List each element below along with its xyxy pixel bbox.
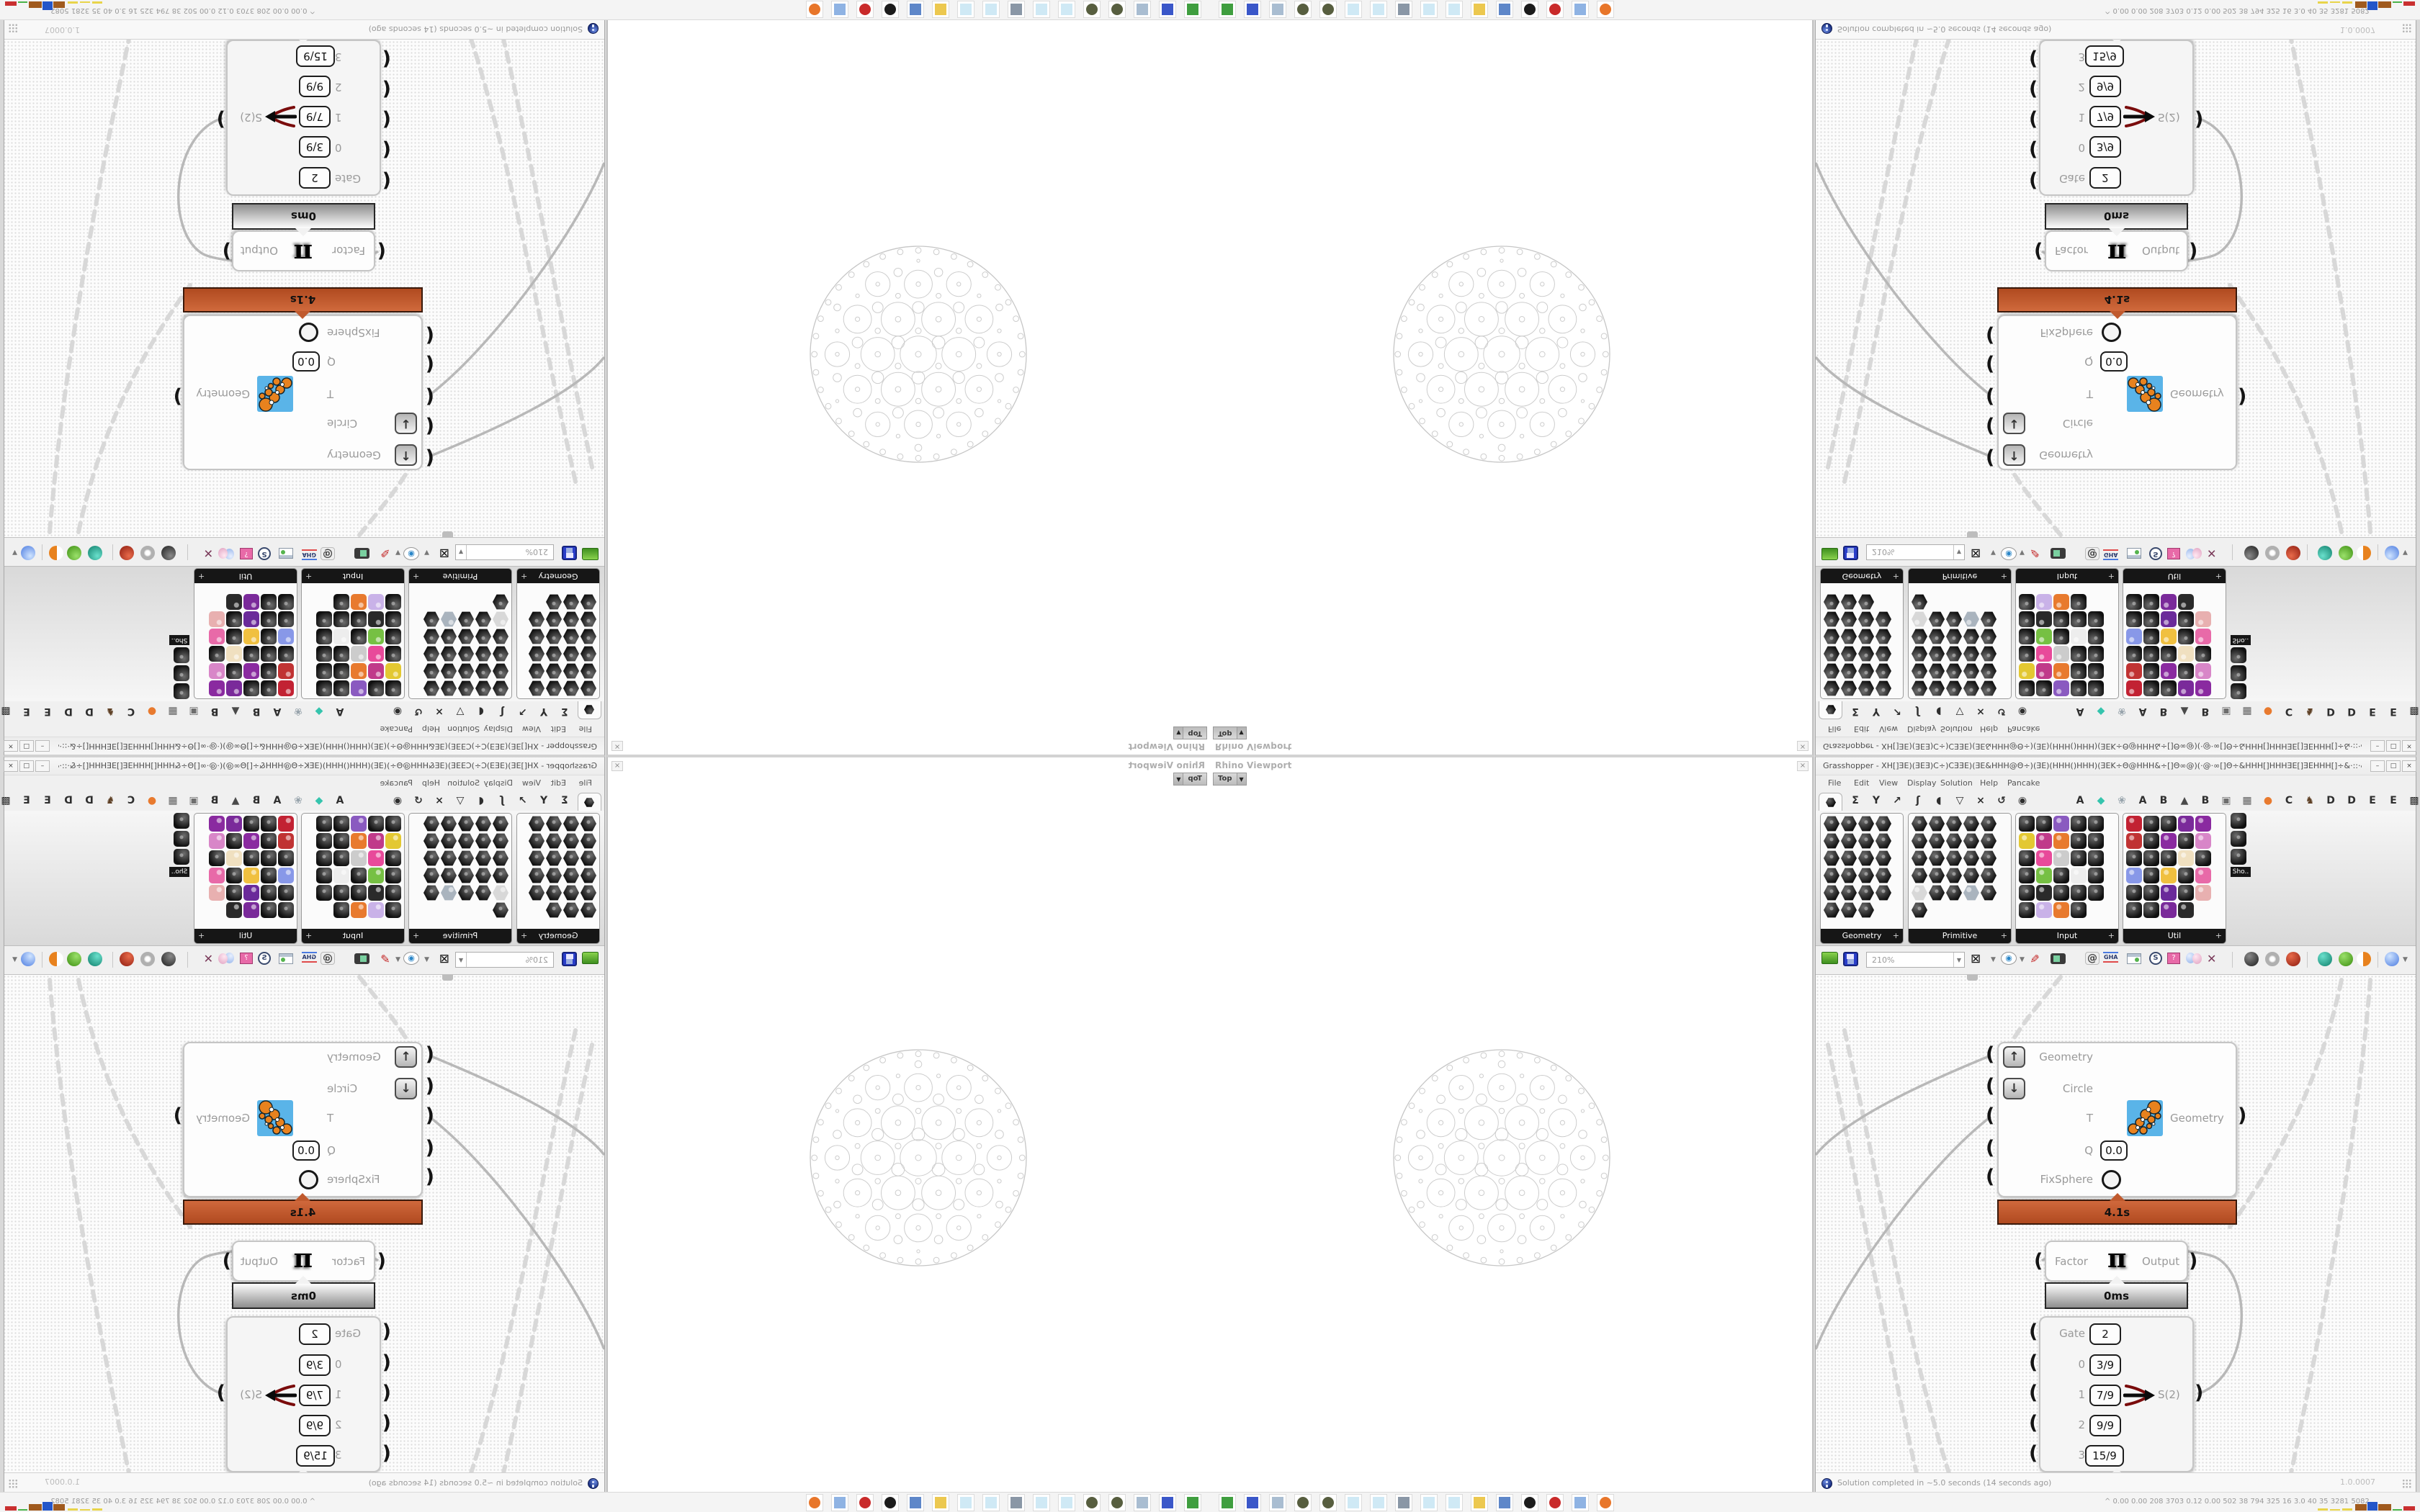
menu-item-solution[interactable]: Solution [1940,724,1973,734]
component-icon[interactable] [529,885,544,901]
expand-plus-icon[interactable]: + [305,569,312,583]
component-icon[interactable] [1929,885,1945,901]
q-value-box[interactable]: 0.0 [292,351,320,372]
component-icon[interactable] [2071,680,2087,696]
component-icon[interactable] [1875,646,1891,662]
component-icon[interactable] [385,663,401,679]
tab-icon[interactable]: ⨯ [431,706,448,717]
tab-icon[interactable]: ↺ [410,795,427,806]
palette-group-label[interactable]: Util+ [2123,929,2226,943]
fraction-value-box[interactable]: 15/9 [296,1445,335,1467]
tab-icon[interactable]: Y [1868,795,1885,806]
fraction-value-box[interactable]: 9/9 [299,1415,331,1436]
selection-green-icon[interactable] [67,952,81,966]
input-connector[interactable]: ( [1986,1108,1994,1124]
component-icon[interactable] [2195,680,2211,696]
component-icon[interactable] [441,611,457,627]
component-icon[interactable] [261,816,277,832]
taskbar-app-icon[interactable] [1294,1494,1312,1511]
menu-item-help[interactable]: Help [1980,778,1998,788]
component-icon[interactable] [243,850,259,866]
component-icon[interactable] [529,833,544,849]
menu-item-display[interactable]: Display [483,724,513,734]
component-icon[interactable] [2053,850,2069,866]
window-layout-icon[interactable] [2127,548,2141,559]
component-icon[interactable] [226,850,242,866]
component-icon[interactable] [333,902,349,918]
component-icon[interactable] [209,680,225,696]
palette-group-label[interactable]: Input+ [2016,569,2118,583]
preview-eye-icon[interactable]: ◉ [2001,952,2017,965]
viewport-view-tab[interactable]: Top ▼ [1213,726,1247,739]
component-icon[interactable] [529,816,544,832]
component-icon[interactable] [2019,850,2035,866]
tab-plugin[interactable]: D [2322,706,2339,717]
component-icon[interactable] [2231,849,2246,865]
component-icon[interactable] [458,646,474,662]
expand-plus-icon[interactable]: + [2215,929,2222,943]
taskbar-app-icon[interactable] [1269,1494,1286,1511]
component-icon[interactable] [2195,646,2211,662]
taskbar-app-icon[interactable] [932,1,949,18]
component-icon[interactable] [529,680,544,696]
resize-grip[interactable] [2402,1479,2411,1488]
component-icon[interactable] [1963,680,1979,696]
component-icon[interactable] [441,850,457,866]
component-icon[interactable] [2019,663,2035,679]
palette-group-label[interactable]: Geometry+ [1821,569,1903,583]
component-icon[interactable] [226,885,242,901]
taskbar[interactable]: ^ 0.00 0.00 208 3703 0.12 0.00 502 38 79… [1210,0,2420,20]
tab-icon[interactable]: ↺ [1993,795,2010,806]
fraction-value-box[interactable]: 3/9 [299,136,331,158]
document-preview-icon[interactable] [2385,546,2399,560]
component-icon[interactable] [546,868,562,883]
taskbar-app-icon[interactable] [1219,1494,1236,1511]
tab-icon[interactable]: Σ [1847,795,1864,806]
preview-off-icon[interactable] [161,546,176,560]
node-fixsphere[interactable]: Geometry↑Circle↓TQ0.0FixSphereGeometry [1997,1042,2237,1197]
component-icon[interactable] [2053,611,2069,627]
tab-plugin[interactable]: ● [143,795,161,806]
component-icon[interactable] [2126,833,2142,849]
tab-plugin[interactable]: D [2343,706,2360,717]
input-connector[interactable]: ( [1986,1047,1994,1063]
component-icon[interactable] [475,868,491,883]
component-icon[interactable] [1875,850,1891,866]
taskbar-app-icon[interactable] [1370,1494,1387,1511]
component-icon[interactable] [278,629,294,644]
component-icon[interactable] [2036,816,2052,832]
component-icon[interactable] [368,594,384,610]
component-icon[interactable] [385,833,401,849]
component-icon[interactable] [2071,594,2087,610]
palette-group-label[interactable]: Primitive+ [409,929,511,943]
component-icon[interactable] [2178,680,2194,696]
component-icon[interactable] [368,646,384,662]
component-icon[interactable] [351,629,367,644]
tab-plugin[interactable]: C [2280,706,2298,717]
component-icon[interactable] [1946,833,1962,849]
maximize-button[interactable]: □ [2386,740,2401,752]
menu-item-display[interactable]: Display [1907,724,1937,734]
component-icon[interactable] [226,816,242,832]
tab-icon[interactable]: ◖ [1930,706,1948,717]
taskbar-app-icon[interactable] [1108,1,1126,18]
tab-plugin[interactable]: ◆ [310,706,328,717]
component-icon[interactable] [243,816,259,832]
menu-item-file[interactable]: File [1828,778,1841,788]
component-icon[interactable] [2019,629,2035,644]
remote-panel-icon[interactable] [2051,953,2066,964]
component-icon[interactable] [1875,611,1891,627]
tab-icon[interactable]: Σ [556,795,573,806]
component-icon[interactable] [385,816,401,832]
component-icon[interactable] [2143,611,2159,627]
component-icon[interactable] [261,680,277,696]
output-connector[interactable]: ) [217,111,225,127]
component-icon[interactable] [563,629,579,644]
component-icon[interactable] [2088,868,2104,883]
component-icon[interactable] [226,680,242,696]
fraction-value-box[interactable]: 3/9 [2089,1354,2121,1376]
gha-assembly-icon[interactable]: GHA [302,952,317,963]
component-icon[interactable] [2195,629,2211,644]
taskbar-app-icon[interactable] [1370,1,1387,18]
component-icon[interactable] [1946,680,1962,696]
fraction-value-box[interactable]: 7/9 [299,1385,331,1406]
component-icon[interactable] [1841,611,1857,627]
component-icon[interactable] [1981,850,1996,866]
component-icon[interactable] [458,680,474,696]
document-preview-icon[interactable] [21,546,35,560]
component-icon[interactable] [316,680,332,696]
component-icon[interactable] [1858,833,1874,849]
tab-icon[interactable]: ʃ [493,795,511,806]
component-icon[interactable] [2036,646,2052,662]
component-icon[interactable] [1946,885,1962,901]
component-icon[interactable] [1912,680,1927,696]
taskbar[interactable]: ^ 0.00 0.00 208 3703 0.12 0.00 502 38 79… [1210,1492,2420,1512]
component-icon[interactable] [226,629,242,644]
component-icon[interactable] [209,885,225,901]
component-icon[interactable] [2178,646,2194,662]
component-icon[interactable] [581,629,596,644]
canvas-scroll-nub[interactable] [1967,531,1978,537]
component-icon[interactable] [1929,850,1945,866]
component-icon[interactable] [1963,663,1979,679]
palette-overflow-strip[interactable]: Sho.. [169,813,189,877]
component-icon[interactable] [563,816,579,832]
tab-icon[interactable]: ↺ [1993,706,2010,717]
fraction-value-box[interactable]: 7/9 [299,106,331,127]
chevron-down-icon[interactable]: ▼ [1991,952,1996,963]
tab-plugin[interactable]: A [331,795,349,806]
expand-plus-icon[interactable]: + [1893,929,1899,943]
component-icon[interactable] [368,629,384,644]
taskbar-app-icon[interactable] [1159,1,1176,18]
component-icon[interactable] [2036,611,2052,627]
component-icon[interactable] [2143,816,2159,832]
zoom-combobox[interactable]: 210%▼ [455,952,554,968]
tab-icon[interactable]: ◖ [472,795,490,806]
menu-item-file[interactable]: File [579,724,592,734]
component-icon[interactable] [2019,902,2035,918]
tab-plugin[interactable]: B [2197,795,2214,806]
tab-plugin[interactable]: ◆ [310,795,328,806]
component-icon[interactable] [493,833,508,849]
gha-assembly-icon[interactable]: GHA [2103,952,2118,963]
taskbar-app-icon[interactable] [957,1,974,18]
fraction-value-box[interactable]: 9/9 [2089,76,2121,97]
component-icon[interactable] [2195,816,2211,832]
component-icon[interactable] [1981,611,1996,627]
taskbar-app-icon[interactable] [831,1,848,18]
component-icon[interactable] [2195,868,2211,883]
resize-grip[interactable] [9,24,18,33]
component-icon[interactable] [1929,611,1945,627]
tab-plugin[interactable]: ▩ [2406,795,2420,806]
component-icon[interactable] [209,663,225,679]
component-icon[interactable] [2161,833,2177,849]
component-icon[interactable] [1981,680,1996,696]
input-connector[interactable]: ( [382,111,391,127]
node-gate[interactable]: Gate203/917/9S(2)29/9315/9 [2039,40,2194,196]
fraction-value-box[interactable]: 7/9 [2089,1385,2121,1406]
component-icon[interactable] [2036,868,2052,883]
component-icon[interactable] [351,902,367,918]
open-file-icon[interactable] [582,548,599,560]
taskbar-app-icon[interactable] [1008,1494,1025,1511]
palette-group-label[interactable]: Geometry+ [1821,929,1903,943]
component-icon[interactable] [2178,611,2194,627]
input-connector[interactable]: ( [382,1416,391,1431]
output-connector[interactable]: ) [174,388,182,404]
selection-orange-icon[interactable] [49,546,63,560]
input-connector[interactable]: ( [382,1324,391,1340]
component-icon[interactable] [1929,868,1945,883]
component-icon[interactable] [581,868,596,883]
component-icon[interactable] [2143,868,2159,883]
expand-plus-icon[interactable]: + [2108,569,2115,583]
component-icon[interactable] [2143,646,2159,662]
component-icon[interactable] [546,850,562,866]
component-icon[interactable] [333,680,349,696]
menu-item-pancake[interactable]: Pancake [2007,724,2040,734]
palette-group-label[interactable]: Input+ [302,929,404,943]
component-icon[interactable] [226,663,242,679]
input-connector[interactable]: ( [2029,1416,2038,1431]
chevron-down-icon[interactable]: ▼ [12,549,17,560]
gha-assembly-icon[interactable]: GHA [2103,549,2118,560]
component-icon[interactable] [1841,902,1857,918]
rhino-viewport-panel[interactable]: Rhino Viewport × Top ▼ [1210,756,1814,1492]
tab-icon[interactable]: ↗ [1888,706,1906,717]
component-icon[interactable] [1875,833,1891,849]
component-icon[interactable] [1824,902,1839,918]
component-icon[interactable] [2161,663,2177,679]
taskbar[interactable]: ^ 0.00 0.00 208 3703 0.12 0.00 502 38 79… [0,0,1210,20]
taskbar-app-icon[interactable] [982,1494,1000,1511]
component-icon[interactable] [333,868,349,883]
selection-orange-icon[interactable] [2357,546,2371,560]
component-icon[interactable] [2161,868,2177,883]
component-icon[interactable] [278,902,294,918]
tab-plugin[interactable]: ◆ [2092,795,2110,806]
component-icon[interactable] [243,663,259,679]
component-icon[interactable] [278,816,294,832]
taskbar-app-icon[interactable] [1159,1494,1176,1511]
component-icon[interactable] [1858,868,1874,883]
preview-eye-icon[interactable]: ◉ [403,547,419,560]
tab-plugin[interactable]: ◆ [2092,706,2110,717]
component-icon[interactable] [2178,594,2194,610]
taskbar-app-icon[interactable] [1058,1,1075,18]
menu-item-file[interactable]: File [579,778,592,788]
menu-item-display[interactable]: Display [483,778,513,788]
component-icon[interactable] [278,663,294,679]
component-icon[interactable] [441,646,457,662]
component-icon[interactable] [2178,885,2194,901]
chevron-down-icon[interactable]: ▼ [395,952,400,963]
component-icon[interactable] [2019,611,2035,627]
menu-item-display[interactable]: Display [1907,778,1937,788]
taskbar-app-icon[interactable] [1420,1,1438,18]
component-icon[interactable] [1824,816,1839,832]
component-icon[interactable] [2088,816,2104,832]
chevron-down-icon[interactable]: ▼ [456,953,467,967]
resize-grip[interactable] [9,1479,18,1488]
balloons-icon[interactable] [2186,952,2202,965]
taskbar-app-icon[interactable] [1184,1494,1201,1511]
component-icon[interactable] [209,833,225,849]
component-icon[interactable] [351,594,367,610]
component-icon[interactable] [385,611,401,627]
preview-eye-icon[interactable]: ◉ [2001,547,2017,560]
balloons-icon[interactable] [218,952,234,965]
component-icon[interactable] [261,594,277,610]
component-icon[interactable] [546,885,562,901]
component-icon[interactable] [333,833,349,849]
taskbar-app-icon[interactable] [1134,1,1151,18]
component-icon[interactable] [1963,611,1979,627]
palette-group-label[interactable]: Primitive+ [1909,929,2011,943]
viewport-view-tab[interactable]: Top ▼ [1173,726,1207,739]
input-connector[interactable]: ( [426,1169,434,1185]
tab-plugin[interactable]: D [2322,795,2339,806]
palette-group-label[interactable]: Geometry+ [517,929,599,943]
node-fixsphere[interactable]: Geometry↑Circle↓TQ0.0FixSphereGeometry [183,315,423,470]
taskbar-app-icon[interactable] [856,1,874,18]
component-icon[interactable] [563,646,579,662]
input-connector[interactable]: ( [1986,1169,1994,1185]
preview-shaded-icon[interactable] [2286,952,2300,966]
zoom-extents-icon[interactable]: ⊠ [1971,952,1981,966]
menu-item-pancake[interactable]: Pancake [380,778,413,788]
component-icon[interactable] [581,646,596,662]
component-icon[interactable] [1841,833,1857,849]
taskbar-app-icon[interactable] [831,1494,848,1511]
component-icon[interactable] [209,611,225,627]
input-connector[interactable]: ( [2029,1355,2038,1371]
taskbar-app-icon[interactable] [1521,1494,1538,1511]
component-icon[interactable] [1912,663,1927,679]
input-connector[interactable]: ( [2029,172,2038,188]
component-icon[interactable] [2036,850,2052,866]
component-icon[interactable] [174,683,189,699]
chevron-down-icon[interactable]: ▼ [2020,952,2025,963]
component-icon[interactable] [243,833,259,849]
viewport-view-tab[interactable]: Top ▼ [1213,773,1247,786]
output-connector[interactable]: ) [2238,1108,2246,1124]
component-icon[interactable] [1946,611,1962,627]
set-many-button[interactable]: ↓ [395,413,417,434]
menu-item-solution[interactable]: Solution [1940,778,1973,788]
input-connector[interactable]: ( [377,243,386,258]
zoom-combobox[interactable]: 210%▼ [1866,952,1965,968]
component-icon[interactable] [2071,902,2087,918]
component-icon[interactable] [2036,594,2052,610]
component-icon[interactable] [261,868,277,883]
grasshopper-window[interactable]: Grasshopper - XH[]ƎE)(ƎEƎ)C÷)CƎƎE)(ƎE&ΗΗ… [1815,20,2416,756]
chevron-down-icon[interactable]: ▼ [456,545,467,559]
tab-icon[interactable]: ⨯ [1972,706,1989,717]
menu-item-file[interactable]: File [1828,724,1841,734]
grasshopper-titlebar[interactable]: Grasshopper - XH[]ƎE)(ƎEƎ)C÷)CƎƎE)(ƎE&ΗΗ… [4,757,604,775]
component-icon[interactable] [423,885,439,901]
close-button[interactable]: × [4,760,18,772]
component-icon[interactable] [2053,833,2069,849]
component-icon[interactable] [174,849,189,865]
preview-wire-icon[interactable] [2265,952,2280,966]
taskbar-app-icon[interactable] [1345,1,1362,18]
maximize-button[interactable]: □ [2386,760,2401,772]
expand-plus-icon[interactable]: + [2215,569,2222,583]
component-icon[interactable] [333,663,349,679]
component-icon[interactable] [2053,646,2069,662]
tab-icon[interactable]: ◉ [2014,795,2031,806]
taskbar-app-icon[interactable] [1083,1494,1101,1511]
preview-wire-icon[interactable] [2265,546,2280,560]
input-connector[interactable]: ( [2034,243,2043,258]
balloons-icon[interactable] [2186,547,2202,560]
component-icon[interactable] [493,885,508,901]
component-icon[interactable] [2053,663,2069,679]
component-icon[interactable] [2143,902,2159,918]
component-icon[interactable] [278,850,294,866]
component-icon[interactable] [2231,647,2246,663]
save-file-icon[interactable] [562,546,577,560]
sketch-pen-icon[interactable]: ✎ [379,549,393,558]
component-icon[interactable] [368,816,384,832]
menu-item-help[interactable]: Help [422,778,440,788]
node-gate[interactable]: Gate203/917/9S(2)29/9315/9 [226,1316,381,1472]
component-icon[interactable] [441,680,457,696]
menu-item-help[interactable]: Help [422,724,440,734]
expand-plus-icon[interactable]: + [1893,569,1899,583]
component-icon[interactable] [2036,833,2052,849]
fraction-value-box[interactable]: 15/9 [2085,45,2124,67]
zoom-extents-icon[interactable]: ⊠ [439,546,449,560]
taskbar-app-icon[interactable] [982,1,1000,18]
window-layout-icon[interactable] [2127,953,2141,964]
publish-at-icon[interactable]: @ [2085,547,2099,560]
selection-teal-icon[interactable] [2318,952,2332,966]
component-icon[interactable] [316,663,332,679]
taskbar-app-icon[interactable] [1219,1,1236,18]
tab-plugin[interactable]: ● [143,706,161,717]
tab-plugin[interactable]: D [81,795,98,806]
